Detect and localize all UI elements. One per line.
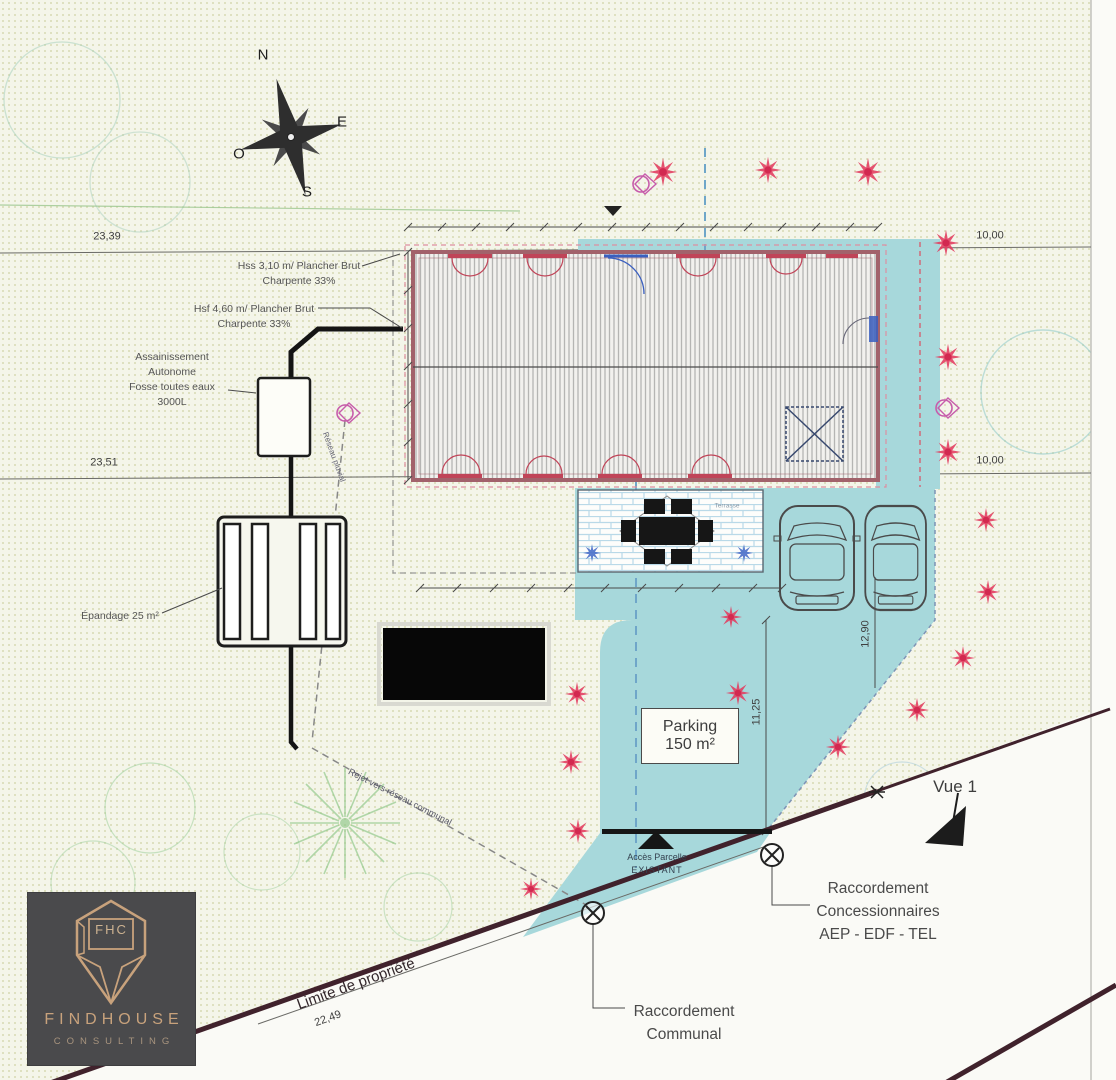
redacted-block <box>379 624 549 704</box>
building <box>413 252 878 480</box>
shrub-icon <box>935 344 961 370</box>
leach-field-label: Épandage 25 m² <box>81 610 159 622</box>
compass-rose <box>226 66 356 208</box>
compass-e: E <box>337 113 347 130</box>
terrace-label: Terrasse <box>715 502 740 509</box>
shrub-icon <box>520 878 542 900</box>
hsf-label-line1: Hsf 4,60 m/ Plancher Brut <box>194 303 314 315</box>
leach-field <box>218 517 346 646</box>
view-1-label: Vue 1 <box>933 777 977 797</box>
dim-top-right: 10,00 <box>976 230 1004 243</box>
access-label-line1: Accès Parcelle <box>627 852 687 862</box>
shrub-icon <box>905 698 929 722</box>
sanitation-label-line2: Autonome <box>148 366 196 378</box>
shrub-icon <box>559 750 583 774</box>
communal-connection-label-line2: Communal <box>647 1026 722 1044</box>
hsf-label-line2: Charpente 33% <box>218 318 291 330</box>
shrub-icon <box>726 681 750 705</box>
compass-n: N <box>258 46 269 63</box>
pink-marker-icon <box>633 174 656 194</box>
sanitation-label-line1: Assainissement <box>135 351 209 363</box>
compass-s: S <box>302 183 312 200</box>
shrub-icon <box>976 580 1000 604</box>
dim-mid-right: 10,00 <box>976 455 1004 468</box>
shrub-icon <box>755 157 781 183</box>
shrub-icon <box>566 819 590 843</box>
sanitation-label-line4: 3000L <box>157 396 186 408</box>
parking-label-line2: 150 m² <box>665 736 715 754</box>
site-plan-scan: N E O S 23,39 10,00 23,51 10,00 Hss 3,10… <box>0 0 1116 1080</box>
shrub-icon <box>826 735 850 759</box>
dim-top-left: 23,39 <box>93 231 121 244</box>
gem-icon <box>28 897 195 1009</box>
shrub-icon <box>933 230 959 256</box>
scan-edge-strip <box>1091 0 1116 1080</box>
hss-label-line1: Hss 3,10 m/ Plancher Brut <box>238 260 361 272</box>
dim-mid-left: 23,51 <box>90 457 118 470</box>
benchmark-triangle <box>604 206 622 216</box>
shrub-icon <box>854 158 883 187</box>
communal-connection-label-line1: Raccordement <box>634 1003 735 1021</box>
shrub-icon <box>974 508 998 532</box>
green-contour-line <box>0 205 520 211</box>
shrub-icon <box>720 606 742 628</box>
logo-subtitle: CONSULTING <box>48 1036 176 1047</box>
shrub-icon <box>565 682 589 706</box>
logo-monogram: FHC <box>95 922 128 937</box>
utility-connection-label-line2: Concessionnaires <box>816 903 939 921</box>
sanitation-label-line3: Fosse toutes eaux <box>129 381 215 393</box>
shrub-icon <box>935 439 961 465</box>
utility-connection-marker <box>761 844 783 866</box>
logo-name: FINDHOUSE <box>39 1011 183 1029</box>
utility-connection-label-line1: Raccordement <box>828 880 929 898</box>
access-label-line2: EXISTANT <box>631 865 682 875</box>
plant-icon <box>735 544 753 562</box>
shrub-icon <box>951 646 975 670</box>
utility-connection-label-line3: AEP - EDF - TEL <box>819 926 936 944</box>
dim-parking-side: 12,90 <box>860 620 873 648</box>
hss-label-line2: Charpente 33% <box>263 275 336 287</box>
pink-marker-icon <box>337 403 360 423</box>
compass-o: O <box>233 145 245 162</box>
parking-label-line1: Parking <box>663 718 717 736</box>
plant-icon <box>583 544 601 562</box>
communal-connection-marker <box>582 902 604 924</box>
parking-label-box: Parking 150 m² <box>641 708 739 764</box>
septic-tank <box>258 378 310 456</box>
dim-parking-height: 11,25 <box>751 699 764 726</box>
findhouse-logo: FHC FINDHOUSE CONSULTING <box>28 893 195 1065</box>
